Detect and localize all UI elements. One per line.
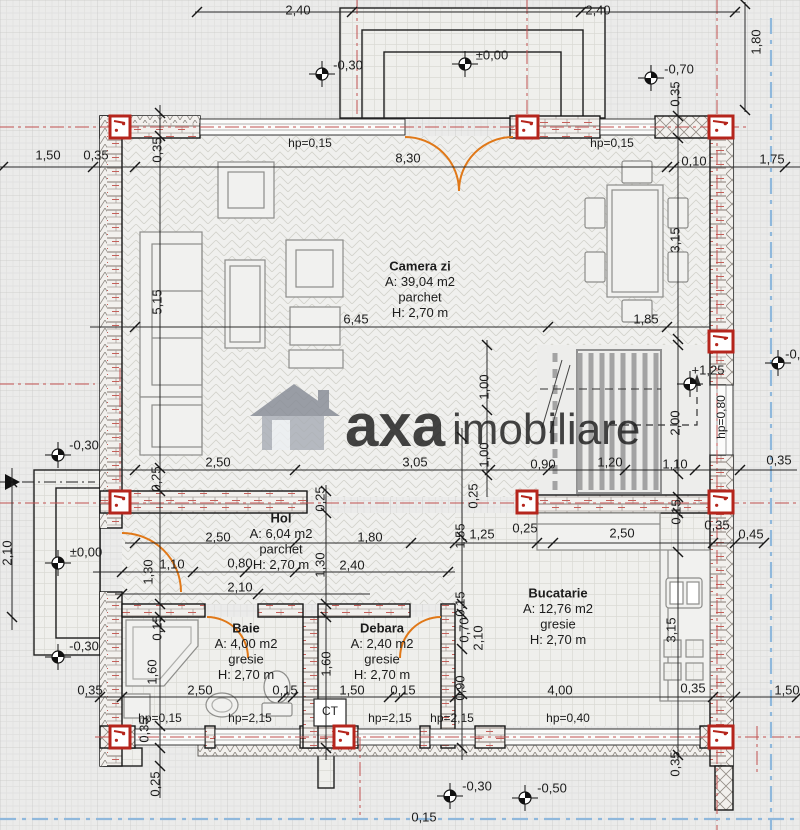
dim-label: 0,70 — [456, 617, 471, 642]
side-table — [290, 307, 340, 345]
floor-plan: 2,402,401,801,500,358,300,101,75hp=0,15h… — [0, 0, 800, 830]
wall-hol-baie-2 — [258, 604, 303, 617]
column-marker — [334, 726, 354, 748]
wall-hol-baie-1 — [122, 604, 205, 617]
dim-label: 1,30 — [312, 552, 327, 577]
dim-label: 1,75 — [759, 151, 784, 166]
dim-label: hp=0,15 — [590, 136, 634, 150]
level-label: -0,30 — [785, 346, 800, 361]
dim-label: 0,35 — [77, 682, 102, 697]
dim-label: 3,15 — [667, 227, 682, 252]
room-height: H: 2,70 m — [392, 305, 448, 320]
wall-baie-debara — [303, 617, 318, 748]
room-floor: gresie — [540, 616, 575, 631]
dim-label: 1,25 — [469, 526, 494, 541]
dim-label: 1,20 — [597, 454, 622, 469]
dim-label: 4,00 — [547, 682, 572, 697]
room-height: H: 2,70 m — [354, 667, 410, 682]
dim-label: 1,50 — [339, 682, 364, 697]
dim-label: 2,10 — [227, 579, 252, 594]
dim-label: 1,10 — [662, 456, 687, 471]
room-area: A: 6,04 m2 — [250, 526, 313, 541]
level-label: -0,30 — [333, 57, 363, 72]
dim-label: hp=2,15 — [228, 711, 272, 725]
dim-label: 0,90 — [452, 675, 467, 700]
dim-label: 1,10 — [159, 556, 184, 571]
armchair — [286, 240, 343, 297]
room-name: Baie — [232, 620, 259, 635]
column-marker — [110, 726, 130, 748]
dim-label: 0,15 — [272, 682, 297, 697]
dim-label: 2,00 — [667, 410, 682, 435]
dim-label: 2,50 — [205, 454, 230, 469]
dim-label: 0,80 — [227, 555, 252, 570]
wall-hol-debara — [318, 604, 410, 617]
room-floor: parchet — [398, 289, 442, 304]
watermark-suffix: imobiliare — [452, 405, 640, 454]
dim-label: 0,35 — [136, 717, 151, 742]
dim-label: 8,30 — [395, 150, 420, 165]
dim-label: 6,45 — [343, 311, 368, 326]
column-marker — [709, 726, 733, 748]
dim-label: 2,40 — [285, 2, 310, 17]
dim-label: 0,35 — [680, 680, 705, 695]
room-area: A: 12,76 m2 — [523, 601, 593, 616]
dim-label: 2,50 — [609, 525, 634, 540]
room-height: H: 2,70 m — [530, 632, 586, 647]
dim-label: hp=2,15 — [430, 711, 474, 725]
column-marker — [517, 116, 538, 138]
room-area: A: 4,00 m2 — [215, 636, 278, 651]
level-label: -0,30 — [69, 638, 99, 653]
dim-label: 0,15 — [390, 682, 415, 697]
dim-label: hp=0,80 — [714, 395, 728, 439]
dim-label: 2,10 — [0, 540, 14, 565]
dim-label: 1,60 — [144, 659, 159, 684]
column-marker — [709, 491, 733, 513]
dim-label: 1,30 — [140, 559, 155, 584]
dim-label: 0,15 — [452, 591, 467, 616]
dim-label: 1,50 — [774, 682, 799, 697]
entry-step-inner — [384, 52, 561, 118]
dim-label: hp=2,15 — [368, 711, 412, 725]
coffee-table — [225, 260, 265, 348]
dim-label: 0,15 — [149, 615, 164, 640]
dim-label: 0,35 — [83, 147, 108, 162]
wall-right-stub — [715, 766, 733, 810]
watermark-brand: axa — [345, 392, 446, 459]
level-label: -0,30 — [462, 778, 492, 793]
dim-label: 0,25 — [312, 486, 327, 511]
dim-label: CT — [322, 704, 339, 718]
dim-label: 0,35 — [704, 517, 729, 532]
armchair — [218, 162, 274, 218]
dim-label: hp=0,15 — [288, 136, 332, 150]
room-name: Bucatarie — [528, 585, 587, 600]
column-marker — [110, 116, 130, 138]
floor-plan-canvas: 2,402,401,801,500,358,300,101,75hp=0,15h… — [0, 0, 800, 830]
dim-label: 2,10 — [470, 625, 485, 650]
dim-label: 3,15 — [663, 617, 678, 642]
dim-label: 0,15 — [411, 809, 436, 824]
dim-label: 5,15 — [149, 289, 164, 314]
dim-label: 0,25 — [512, 520, 537, 535]
dim-label: 2,50 — [205, 529, 230, 544]
dim-label: 0,45 — [738, 526, 763, 541]
room-floor: gresie — [364, 651, 399, 666]
level-label: ±0,00 — [70, 544, 102, 559]
sideboard — [289, 350, 343, 368]
dim-label: 1,60 — [318, 651, 333, 676]
room-name: Camera zi — [389, 258, 450, 273]
dim-label: 0,25 — [147, 771, 162, 796]
room-name: Debara — [360, 620, 405, 635]
column-marker — [709, 331, 733, 352]
room-floor: gresie — [228, 651, 263, 666]
dim-label: 1,85 — [633, 311, 658, 326]
room-area: A: 2,40 m2 — [351, 636, 414, 651]
dim-label: 1,55 — [452, 523, 467, 548]
dim-label: 2,40 — [339, 557, 364, 572]
room-height: H: 2,70 m — [253, 557, 309, 572]
dim-label: 0,35 — [667, 81, 682, 106]
wall-stairs-kitchen — [537, 495, 710, 513]
dim-label: 0,35 — [149, 137, 164, 162]
column-marker — [709, 116, 733, 138]
dim-label: 0,25 — [148, 466, 163, 491]
room-floor: parchet — [259, 541, 303, 556]
dim-label: 1,00 — [476, 374, 491, 399]
room-height: H: 2,70 m — [218, 667, 274, 682]
sofa — [140, 232, 202, 455]
dim-label: 0,15 — [668, 499, 683, 524]
dim-label: hp=0,40 — [546, 711, 590, 725]
level-label: -0,70 — [664, 61, 694, 76]
dim-label: 1,80 — [357, 529, 382, 544]
room-area: A: 39,04 m2 — [385, 274, 455, 289]
level-label: -0,30 — [69, 437, 99, 452]
column-marker — [517, 491, 537, 513]
dim-label: 2,40 — [585, 2, 610, 17]
level-label: -0,50 — [537, 780, 567, 795]
dim-label: 1,80 — [748, 29, 763, 54]
level-label: +1,25 — [692, 362, 725, 377]
dim-label: 1,50 — [35, 147, 60, 162]
dim-label: 0,10 — [681, 153, 706, 168]
dim-label: 0,35 — [667, 751, 682, 776]
dim-label: 0,35 — [766, 452, 791, 467]
dim-label: 0,90 — [530, 456, 555, 471]
level-label: ±0,00 — [476, 47, 508, 62]
column-marker — [110, 491, 130, 513]
dim-label: 2,50 — [187, 682, 212, 697]
room-name: Hol — [271, 510, 292, 525]
dim-label: 0,25 — [465, 483, 480, 508]
